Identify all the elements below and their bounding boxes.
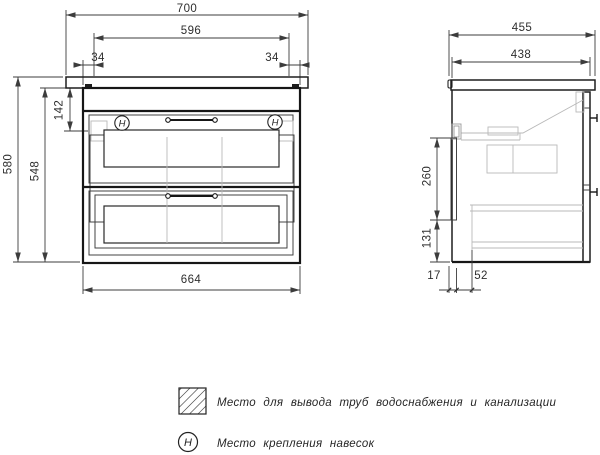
front-width-body-dimension: 664	[181, 274, 202, 286]
side-back-panel-inset-dimension: 17	[427, 270, 441, 282]
technical-drawing-vanity-cabinet: 700 596 34 34 580 548 142	[0, 0, 600, 455]
hook-symbol-letter: H	[272, 118, 279, 129]
side-drawer1-box	[487, 145, 557, 173]
front-width-inner-dimension: 596	[181, 25, 201, 37]
front-drawer1-box	[104, 130, 279, 167]
side-pipe-offset-dimension: 52	[474, 270, 488, 282]
front-height-body-dimension: 548	[30, 161, 42, 181]
side-cabinet-body	[448, 80, 597, 262]
side-countertop	[451, 80, 595, 90]
side-top-dimensions: 455 438	[449, 22, 595, 78]
legend-hatch-swatch-icon	[179, 388, 206, 414]
front-drawer2-handle	[166, 194, 218, 199]
legend-pipe-zone-label: Место для вывода труб водоснабжения и ка…	[217, 397, 556, 409]
side-pipe-zone-height-dimension: 260	[422, 166, 434, 186]
front-offset-right-dimension: 34	[265, 52, 279, 64]
front-top-dimensions: 700 596 34 34	[66, 3, 309, 85]
side-bottom-dimensions: 17 52	[427, 250, 488, 293]
front-offset-left-dimension: 34	[91, 52, 105, 64]
side-depth-body-dimension: 438	[511, 49, 531, 61]
side-handle-top	[590, 114, 597, 122]
side-depth-total-dimension: 455	[512, 22, 532, 34]
front-bottom-dimension: 664	[83, 266, 300, 294]
legend: Место для вывода труб водоснабжения и ка…	[179, 388, 557, 452]
front-top-section-dimension: 142	[54, 100, 66, 120]
front-left-dimensions: 580 548 142	[3, 77, 89, 262]
legend-hook-symbol-letter: H	[184, 437, 192, 449]
legend-hook-label: Место крепления навесок	[217, 438, 375, 450]
side-internal-structure	[461, 92, 584, 250]
front-countertop	[66, 77, 308, 88]
hook-symbol-letter: H	[119, 119, 126, 130]
legend-item-hook-mount: H Место крепления навесок	[179, 433, 375, 452]
front-view: 700 596 34 34 580 548 142	[3, 3, 310, 294]
hook-mount-symbol-right: H	[268, 115, 282, 129]
side-pipe-zone-bottom-offset-dimension: 131	[422, 228, 434, 248]
front-height-total-dimension: 580	[3, 154, 15, 174]
side-drawer-fronts	[583, 92, 590, 262]
front-width-top-dimension: 700	[177, 3, 197, 15]
side-view: 455 438	[422, 22, 598, 293]
legend-item-pipe-zone: Место для вывода труб водоснабжения и ка…	[179, 388, 556, 414]
front-drawer1-handle	[166, 118, 218, 123]
side-hook-bracket-inner	[454, 126, 459, 137]
front-drawer2-box	[104, 206, 279, 243]
front-cabinet-body: H H	[66, 77, 308, 263]
side-handle-bottom	[590, 188, 597, 196]
hook-mount-symbol-left: H	[115, 116, 129, 130]
drawing-svg: 700 596 34 34 580 548 142	[0, 0, 600, 455]
